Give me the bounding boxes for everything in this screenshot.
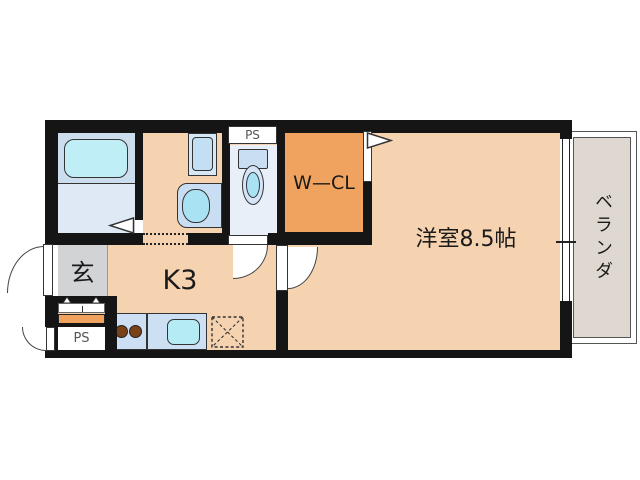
wcl-door-triangle bbox=[366, 131, 393, 150]
wcl-label: W—CL bbox=[293, 172, 355, 194]
toilet-door-leaf bbox=[228, 235, 268, 245]
veranda-label: ベランダ bbox=[589, 192, 615, 284]
refrigerator-space bbox=[211, 316, 244, 348]
veranda: ベランダ bbox=[573, 137, 631, 338]
wall-bath-washroom bbox=[135, 133, 143, 221]
bathroom-door-triangle bbox=[108, 216, 135, 235]
wall-genkan-column bbox=[105, 296, 117, 358]
washbasin-bowl bbox=[182, 189, 210, 223]
kitchen-sink bbox=[167, 319, 200, 345]
entry-step bbox=[58, 303, 105, 313]
ps-bottom-box: PS bbox=[58, 327, 105, 350]
wall-washroom-toilet bbox=[222, 133, 230, 245]
wall-right-lower bbox=[560, 301, 572, 350]
kitchen-label-box: K3 bbox=[130, 263, 230, 297]
entrance-door-arc bbox=[7, 246, 44, 293]
wall-bottom bbox=[45, 350, 572, 358]
main-room-label-box: 洋室8.5帖 bbox=[370, 222, 562, 252]
bathroom-door-gap bbox=[135, 220, 143, 233]
step-center-tick bbox=[82, 306, 84, 312]
floor-plan: ベランダ W—CL 玄 PS bbox=[0, 0, 640, 480]
entrance-door-leaf bbox=[43, 244, 53, 296]
main-room-label: 洋室8.5帖 bbox=[416, 221, 517, 253]
ps-door-arc bbox=[22, 327, 46, 351]
toilet-bowl-inner bbox=[246, 172, 260, 198]
wall-left-upper bbox=[45, 133, 58, 243]
ps-top-label: PS bbox=[245, 128, 260, 142]
bathtub bbox=[64, 139, 128, 178]
genkan-label: 玄 bbox=[71, 253, 95, 288]
window-glass-lines bbox=[562, 139, 570, 301]
wall-toilet-wcl bbox=[277, 120, 285, 245]
wall-toilet-bottom-right bbox=[268, 233, 277, 245]
washing-machine-pan bbox=[188, 133, 217, 176]
counter-divider bbox=[146, 313, 148, 350]
ps-top-box: PS bbox=[228, 126, 277, 144]
wall-kitchen-main bbox=[276, 290, 288, 350]
open-boundary-dotted bbox=[143, 233, 188, 245]
wall-top bbox=[45, 120, 572, 133]
ps-door-leaf bbox=[46, 327, 55, 351]
ps-bottom-label: PS bbox=[73, 331, 89, 346]
genkan-floor: 玄 bbox=[58, 245, 108, 296]
wall-washroom-bottom bbox=[188, 233, 222, 245]
balcony-window bbox=[560, 139, 572, 301]
wall-ps-divider bbox=[58, 323, 105, 327]
washing-machine bbox=[192, 137, 213, 171]
main-room-door-leaf bbox=[276, 245, 288, 291]
stove-burner-right bbox=[129, 325, 142, 338]
wall-wcl-bottom bbox=[277, 232, 372, 245]
kitchen-label: K3 bbox=[163, 265, 198, 296]
walk-in-closet: W—CL bbox=[285, 133, 363, 232]
